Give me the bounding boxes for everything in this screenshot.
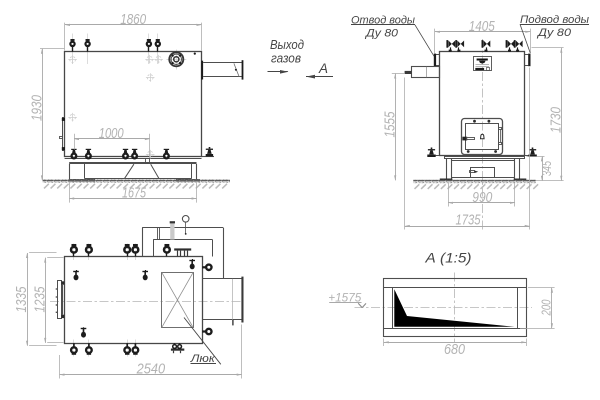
svg-text:Люк: Люк: [190, 353, 216, 365]
svg-text:Ду 80: Ду 80: [364, 28, 399, 40]
svg-text:680: 680: [444, 342, 465, 358]
svg-text:1735: 1735: [456, 212, 481, 228]
svg-text:А (1:5): А (1:5): [424, 251, 471, 266]
svg-text:345: 345: [540, 161, 554, 176]
svg-text:Подвод воды: Подвод воды: [520, 14, 589, 26]
svg-text:Ду 80: Ду 80: [536, 27, 572, 39]
svg-text:А: А: [318, 61, 328, 76]
svg-text:1235: 1235: [32, 286, 48, 312]
svg-text:1000: 1000: [99, 126, 124, 142]
svg-text:1405: 1405: [469, 19, 495, 35]
svg-text:газов: газов: [271, 52, 301, 66]
svg-text:Выход: Выход: [270, 38, 304, 52]
svg-text:1335: 1335: [14, 286, 30, 312]
svg-text:2540: 2540: [136, 361, 165, 377]
svg-text:1860: 1860: [120, 12, 146, 28]
svg-text:1930: 1930: [29, 95, 45, 121]
svg-text:1555: 1555: [382, 111, 398, 137]
svg-text:1675: 1675: [122, 186, 146, 202]
svg-text:990: 990: [472, 190, 492, 206]
svg-text:1730: 1730: [548, 107, 564, 133]
svg-text:200: 200: [539, 299, 554, 316]
